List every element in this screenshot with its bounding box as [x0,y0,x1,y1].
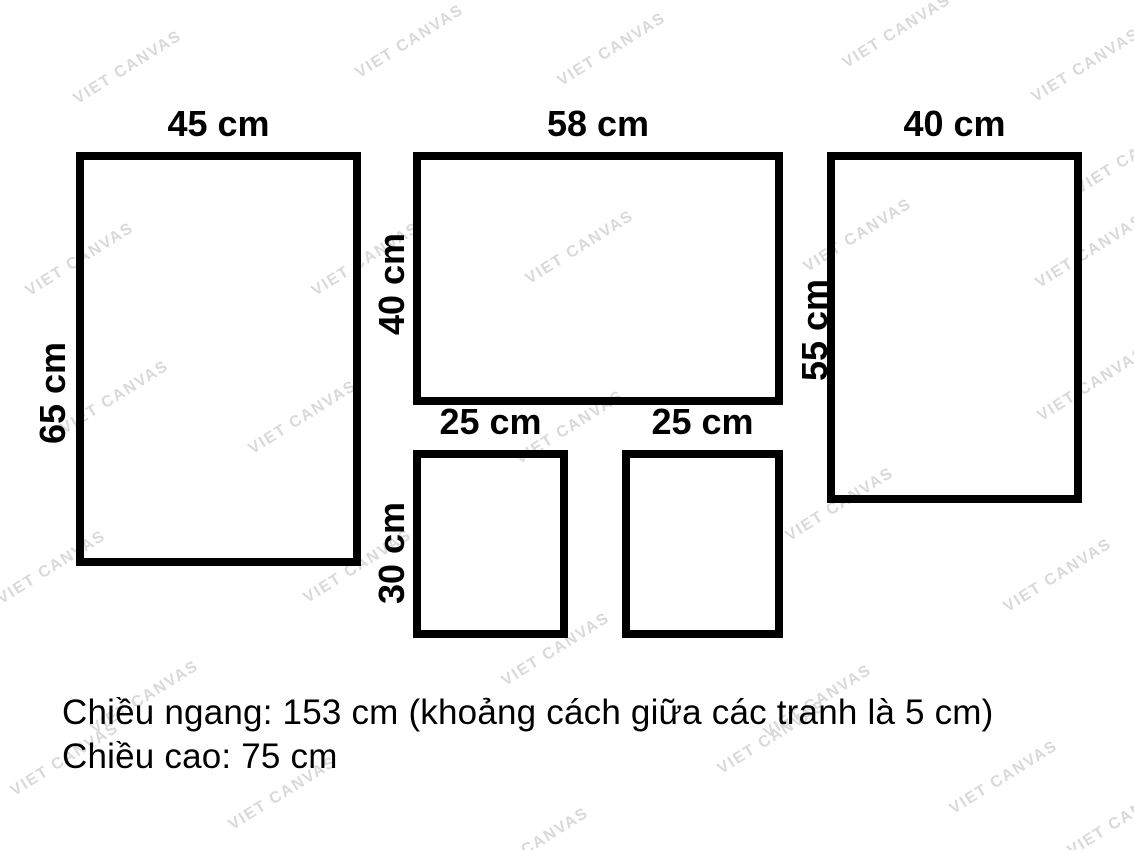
watermark-text: VIET CANVAS [1029,26,1134,107]
total-width-note: Chiều ngang: 153 cm (khoảng cách giữa cá… [62,691,994,735]
height-label: 30 cm [371,502,413,604]
frame-40x55-outline [827,152,1082,503]
frame-25x30-right-outline [622,450,783,638]
watermark-text: VIET CANVAS [71,28,186,109]
frame-25x30-left-outline [413,450,568,638]
width-label: 40 cm [767,104,1134,144]
frame-58x40-outline [413,152,783,405]
watermark-text: VIET CANVAS [478,805,593,850]
width-label: 25 cm [562,402,843,442]
watermark-text: VIET CANVAS [353,2,468,83]
height-label: 55 cm [794,278,836,380]
watermark-text: VIET CANVAS [1065,780,1134,850]
height-label: 65 cm [32,342,74,444]
watermark-text: VIET CANVAS [555,10,670,91]
watermark-text: VIET CANVAS [840,0,955,72]
total-height-note: Chiều cao: 75 cm [62,735,994,779]
footer-note: Chiều ngang: 153 cm (khoảng cách giữa cá… [62,691,994,779]
size-diagram-canvas: VIET CANVASVIET CANVASVIET CANVASVIET CA… [0,0,1134,850]
frame-45x65-outline [76,152,361,566]
watermark-text: VIET CANVAS [1001,536,1116,617]
height-label: 40 cm [371,232,413,334]
